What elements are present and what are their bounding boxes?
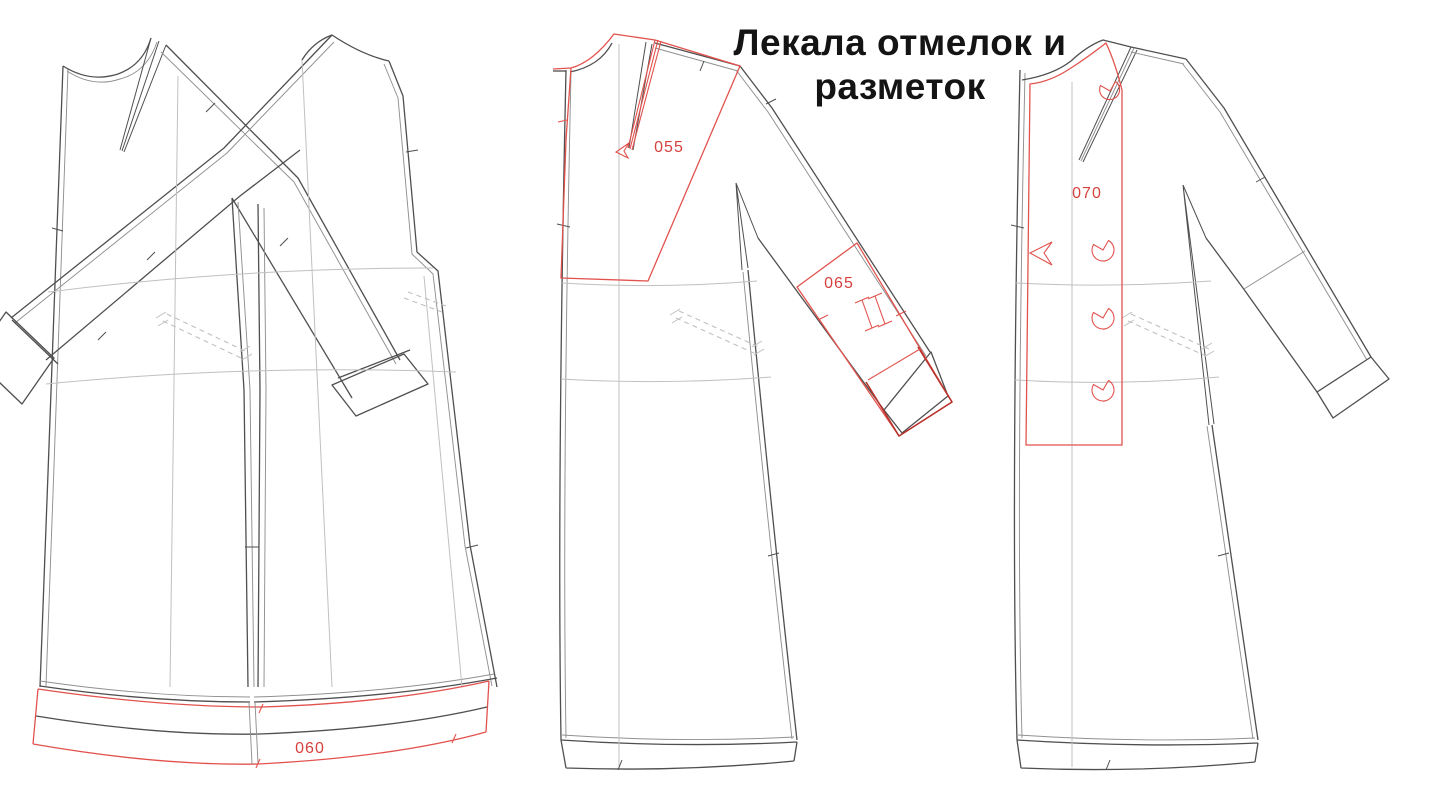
pocket-placement-mark xyxy=(156,312,252,360)
page-title: Лекала отмелок и разметок xyxy=(734,22,1067,107)
pattern-piece-middle: 055 065 xyxy=(553,34,952,770)
buttonhole-mark xyxy=(855,293,892,331)
dart-tip-arrow-icon xyxy=(616,143,629,158)
label-cuff: 065 xyxy=(824,275,854,292)
left-construction-lines xyxy=(46,60,462,687)
button-mark-icon xyxy=(1092,381,1114,402)
button-mark-icon xyxy=(1092,241,1114,262)
label-yoke: 055 xyxy=(654,139,684,156)
page-title-line1: Лекала отмелок и xyxy=(734,22,1067,63)
middle-notch-ticks xyxy=(557,61,779,770)
pattern-piece-left-composite: 060 xyxy=(0,35,497,768)
page-title-line2: разметок xyxy=(814,66,985,107)
button-mark-icon xyxy=(1092,309,1114,330)
clip-arrow-icon xyxy=(1030,242,1052,265)
pattern-piece-right: 070 xyxy=(1011,40,1389,770)
cuff-overlay: 065 xyxy=(797,243,952,436)
pattern-drawing-canvas: 060 xyxy=(0,0,1440,808)
right-construction-lines xyxy=(1015,82,1219,767)
label-placket: 070 xyxy=(1072,185,1102,202)
pocket-placement-mark xyxy=(670,309,764,355)
yoke-overlay: 055 xyxy=(553,34,740,281)
middle-body-outline xyxy=(553,42,948,769)
pattern-diagram: 060 xyxy=(0,0,1440,808)
label-hem-band: 060 xyxy=(295,740,325,757)
right-body-outline xyxy=(1014,40,1389,770)
